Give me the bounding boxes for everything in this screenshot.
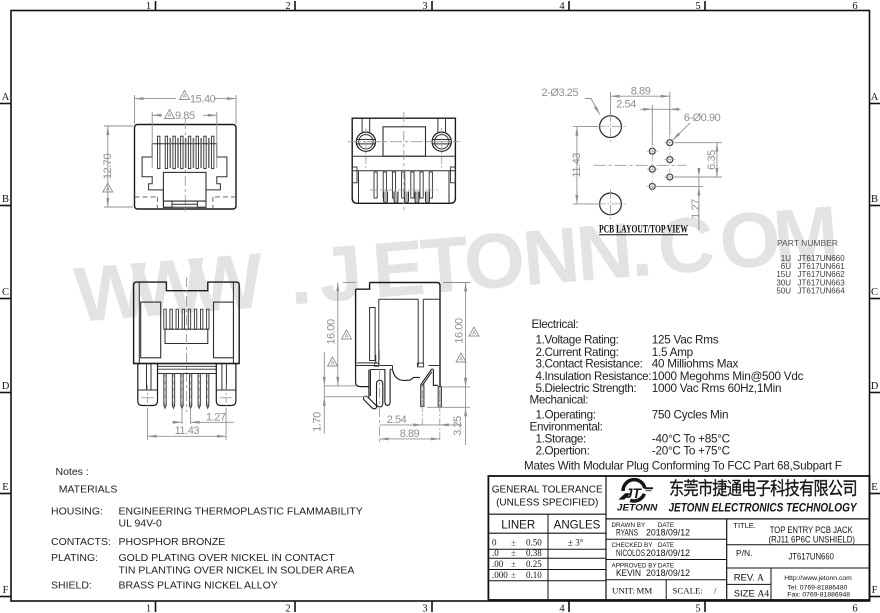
svg-text:SHIELD:: SHIELD: (51, 580, 92, 592)
svg-text:UNIT:: UNIT: (612, 586, 635, 596)
svg-text:BRASS PLATING NICKEL ALLOY: BRASS PLATING NICKEL ALLOY (119, 580, 278, 592)
svg-text:NICOLOS: NICOLOS (616, 548, 645, 558)
svg-text:Mates With Modular Plug Confor: Mates With Modular Plug Conforming To FC… (524, 460, 842, 473)
svg-text:3: 3 (422, 1, 427, 12)
svg-text:(UNLESS SPECIFIED): (UNLESS SPECIFIED) (496, 498, 598, 509)
svg-text:12.70: 12.70 (102, 154, 114, 180)
svg-text:2018/09/12: 2018/09/12 (646, 568, 690, 578)
svg-text:A: A (2, 92, 10, 103)
svg-text:1.27: 1.27 (690, 199, 702, 219)
svg-text:D: D (2, 381, 10, 392)
svg-text:1: 1 (146, 604, 151, 613)
svg-text:JT617UN660: JT617UN660 (788, 552, 834, 562)
svg-text:6: 6 (852, 1, 857, 12)
svg-text:2-Ø3.25: 2-Ø3.25 (542, 87, 579, 99)
svg-text:C: C (2, 287, 9, 298)
svg-text:-20°C To +75°C: -20°C To +75°C (652, 444, 730, 457)
svg-text:HOUSING:: HOUSING: (51, 506, 103, 518)
svg-text:A: A (459, 357, 463, 363)
svg-text:11.43: 11.43 (175, 425, 200, 437)
svg-text:1: 1 (146, 1, 151, 12)
svg-text:A: A (331, 361, 335, 367)
svg-text:±: ± (511, 559, 516, 569)
svg-text:0.38: 0.38 (526, 548, 542, 558)
svg-text:A: A (183, 94, 187, 100)
svg-text:F: F (3, 585, 9, 596)
svg-text:GOLD PLATING OVER NICKEL IN CO: GOLD PLATING OVER NICKEL IN CONTACT (119, 552, 336, 564)
svg-text:2018/09/12: 2018/09/12 (646, 548, 690, 558)
svg-text:P/N.: P/N. (736, 548, 753, 558)
svg-text:2.Opertion:: 2.Opertion: (536, 444, 590, 457)
svg-text:±: ± (511, 538, 516, 548)
svg-text:Tel: 0769-81886480: Tel: 0769-81886480 (787, 585, 847, 592)
svg-text:PCB LAYOUT/TOP VIEW: PCB LAYOUT/TOP VIEW (599, 224, 688, 236)
svg-text:A: A (871, 92, 879, 103)
svg-text:A4: A4 (758, 590, 770, 600)
svg-text:3.25: 3.25 (452, 416, 464, 436)
svg-text:5: 5 (695, 1, 700, 12)
svg-text:1000 Vac Rms 60Hz,1Min: 1000 Vac Rms 60Hz,1Min (652, 382, 781, 395)
svg-text:5: 5 (695, 604, 700, 613)
svg-text:8.89: 8.89 (400, 428, 420, 440)
svg-text:ENGINEERING THERMOPLASTIC FLAM: ENGINEERING THERMOPLASTIC FLAMMABILITY (119, 506, 363, 518)
svg-text:(RJ11 6P6C UNSHIELD): (RJ11 6P6C UNSHIELD) (769, 535, 856, 546)
svg-text:D: D (871, 381, 879, 392)
svg-text:15.40: 15.40 (190, 94, 216, 106)
svg-text:1.27: 1.27 (206, 412, 226, 424)
svg-text:Fax: 0769-81886948: Fax: 0769-81886948 (787, 592, 850, 599)
svg-text:3: 3 (422, 604, 427, 613)
svg-text:±: ± (511, 548, 516, 558)
svg-text:PHOSPHOR BRONZE: PHOSPHOR BRONZE (119, 536, 226, 548)
svg-text:TIN PLANTING OVER NICKEL IN SO: TIN PLANTING OVER NICKEL IN SOLDER AREA (119, 564, 355, 576)
svg-text:2: 2 (285, 604, 290, 613)
svg-text:4: 4 (559, 1, 565, 12)
svg-text:.00: .00 (492, 559, 504, 569)
svg-text:A: A (168, 113, 172, 119)
svg-text:0.10: 0.10 (526, 570, 542, 580)
svg-text:JT617UN664: JT617UN664 (798, 286, 846, 295)
svg-text:1.70: 1.70 (312, 412, 324, 432)
svg-text:ANGLES: ANGLES (554, 520, 601, 532)
svg-text:2018/09/12: 2018/09/12 (646, 528, 690, 538)
svg-text:Mechanical:: Mechanical: (530, 394, 589, 407)
svg-text:6: 6 (852, 604, 857, 613)
svg-text:11.43: 11.43 (571, 153, 583, 178)
svg-text:50U: 50U (776, 286, 791, 295)
svg-text:MM: MM (637, 586, 653, 596)
svg-text:JETONN: JETONN (617, 502, 659, 513)
svg-text:LINER: LINER (501, 520, 535, 532)
svg-text:CONTACTS:: CONTACTS: (51, 536, 111, 548)
svg-text:E: E (871, 482, 877, 493)
svg-text:GENERAL TOLERANCE: GENERAL TOLERANCE (492, 485, 603, 496)
svg-text:B: B (871, 194, 878, 205)
svg-text:F: F (872, 585, 878, 596)
svg-text:16.00: 16.00 (326, 319, 338, 345)
svg-text:Notes :: Notes : (56, 466, 89, 478)
svg-text:A: A (345, 334, 349, 340)
svg-text:A: A (106, 187, 110, 193)
svg-text:Electrical:: Electrical: (532, 318, 579, 331)
svg-text:6.35: 6.35 (706, 150, 718, 170)
svg-text:SCALE:: SCALE: (673, 586, 703, 596)
svg-text:Environmental:: Environmental: (530, 420, 603, 433)
svg-text:SIZE: SIZE (734, 589, 755, 600)
svg-text:RYANS: RYANS (616, 528, 638, 538)
svg-text:6-Ø0.90: 6-Ø0.90 (684, 112, 721, 124)
svg-text:0.50: 0.50 (526, 538, 542, 548)
svg-text:Http://www.jetonn.com: Http://www.jetonn.com (784, 575, 852, 582)
svg-text:8.89: 8.89 (631, 86, 651, 98)
svg-text:3.Contact Resistance:: 3.Contact Resistance: (536, 358, 643, 371)
svg-text:± 3°: ± 3° (568, 538, 584, 548)
svg-text:KEVIN: KEVIN (616, 568, 641, 578)
svg-text:.000: .000 (492, 570, 508, 580)
svg-text:750 Cycles Min: 750 Cycles Min (652, 408, 728, 421)
svg-text:JT: JT (625, 486, 643, 501)
svg-text:0: 0 (492, 538, 497, 548)
svg-text:MATERIALS: MATERIALS (59, 484, 118, 496)
svg-text:UL 94V-0: UL 94V-0 (119, 518, 163, 530)
svg-text:B: B (2, 194, 9, 205)
svg-text:A: A (472, 331, 476, 337)
svg-text:2: 2 (285, 1, 290, 12)
svg-text:A: A (757, 574, 764, 584)
svg-text:PLATING:: PLATING: (51, 552, 98, 564)
svg-text:E: E (2, 482, 8, 493)
svg-text:4: 4 (559, 604, 565, 613)
svg-text:125 Vac Rms: 125 Vac Rms (652, 334, 719, 347)
svg-text:C: C (871, 287, 878, 298)
svg-text:TITLE.: TITLE. (733, 521, 756, 530)
svg-text:40 Milliohms Max: 40 Milliohms Max (652, 358, 739, 371)
svg-text:2.54: 2.54 (616, 99, 636, 111)
svg-text:JETONN ELECTRONICS TECHNOLOGY: JETONN ELECTRONICS TECHNOLOGY (669, 501, 858, 515)
svg-text:0.25: 0.25 (526, 559, 542, 569)
svg-text:2.54: 2.54 (387, 414, 407, 426)
svg-text:9.85: 9.85 (175, 110, 195, 122)
svg-text:±: ± (511, 570, 516, 580)
svg-text:REV.: REV. (734, 573, 755, 584)
svg-text:1.Voltage Rating:: 1.Voltage Rating: (536, 334, 619, 347)
svg-text:PART NUMBER: PART NUMBER (777, 238, 838, 248)
svg-text:.0: .0 (492, 548, 499, 558)
svg-text:16.00: 16.00 (454, 318, 466, 344)
